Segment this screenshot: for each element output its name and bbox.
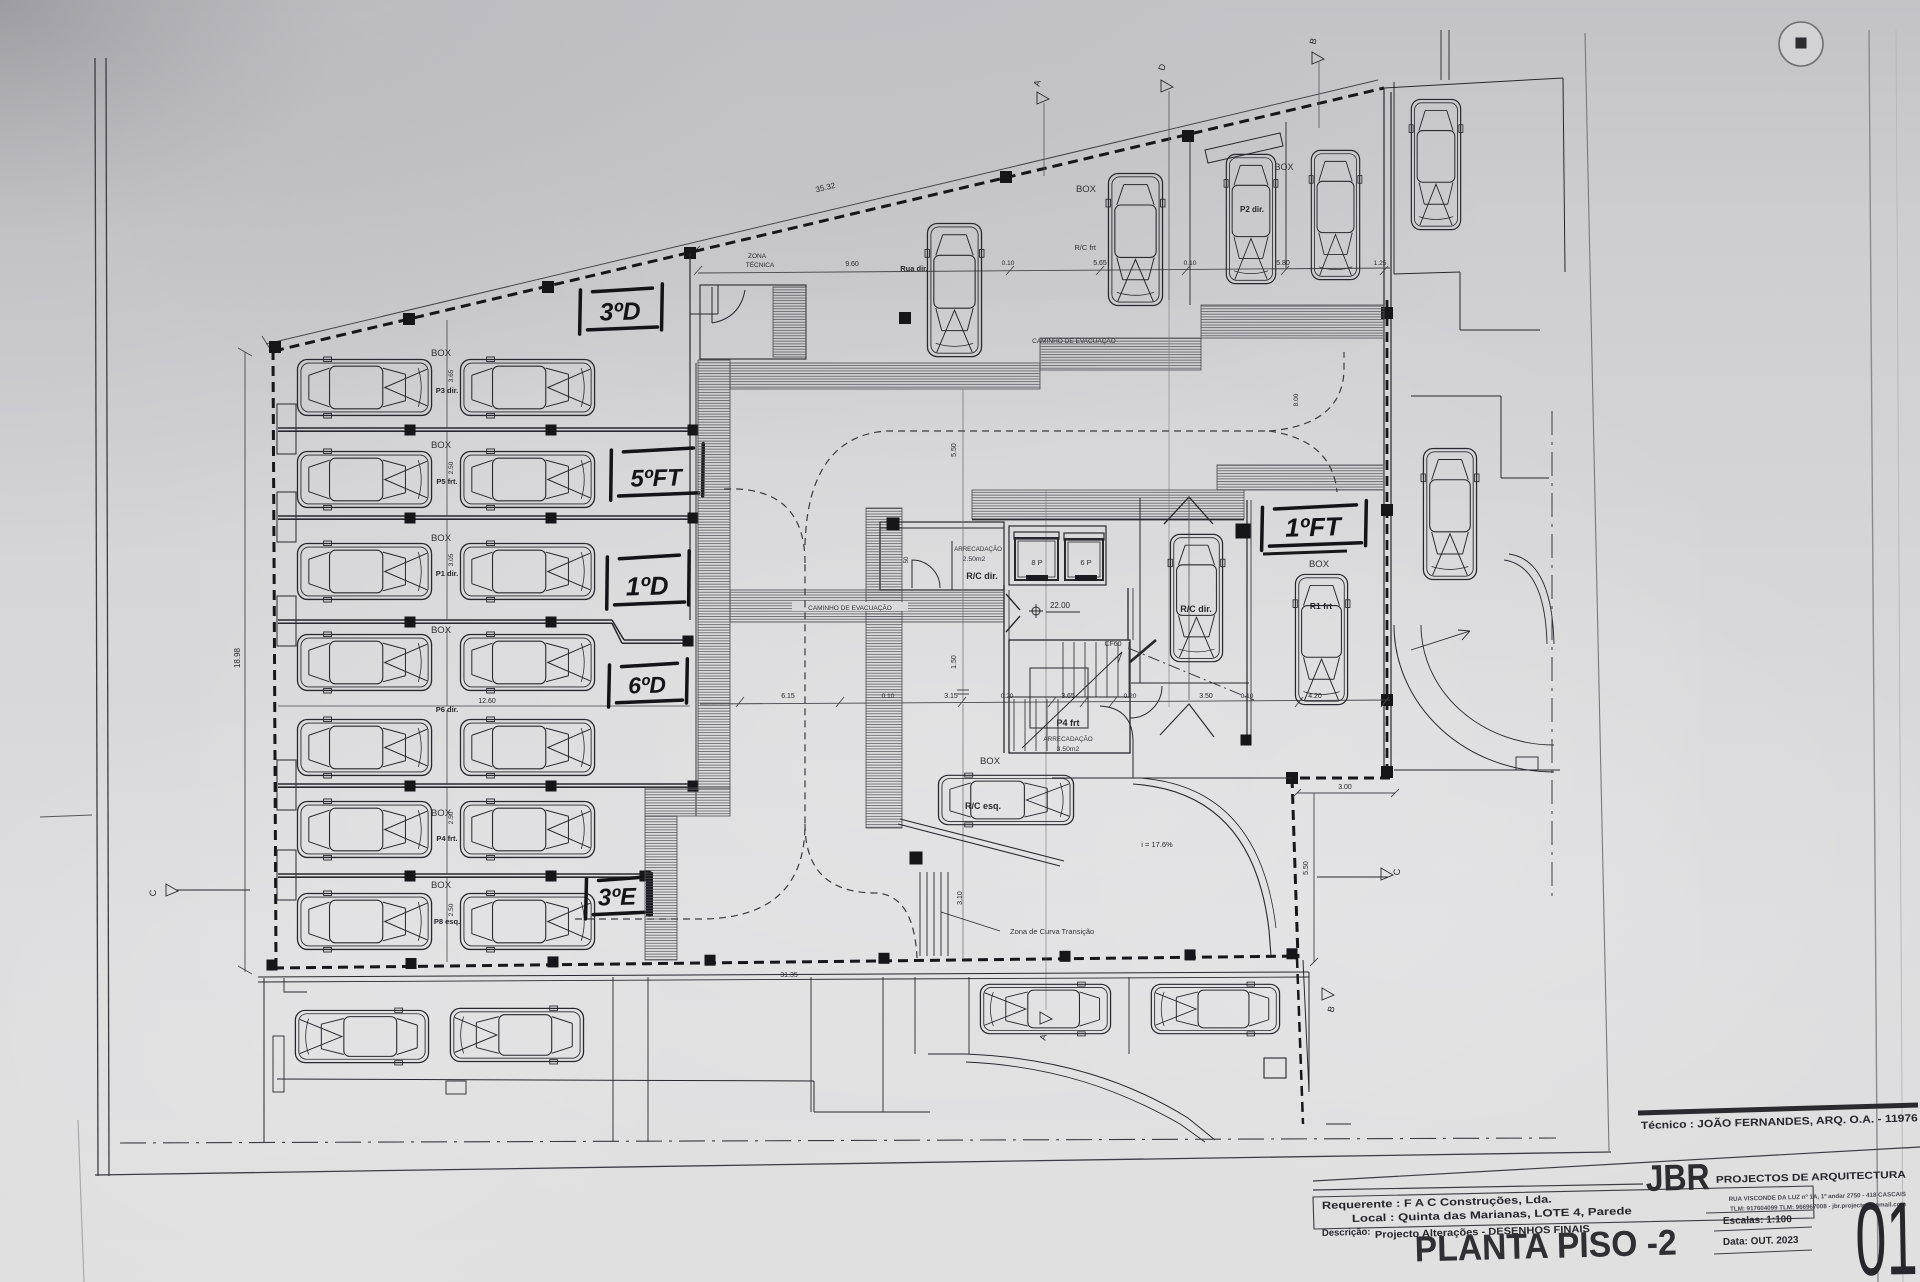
svg-text:R/C dir.: R/C dir. [966,571,998,581]
svg-text:5.65: 5.65 [1093,260,1107,267]
svg-text:31.35: 31.35 [780,972,798,979]
svg-text:ARRECADAÇÃO: ARRECADAÇÃO [954,546,1002,553]
svg-text:3.65: 3.65 [1061,693,1075,700]
svg-text:P6 dir.: P6 dir. [436,705,459,714]
svg-text:CAMINHO DE EVACUAÇÃO: CAMINHO DE EVACUAÇÃO [1032,336,1116,345]
svg-text:01: 01 [1854,1181,1918,1282]
svg-text:PLANTA PISO -2: PLANTA PISO -2 [1414,1222,1677,1270]
svg-text:C: C [1392,868,1402,875]
svg-text:BOX: BOX [431,625,452,636]
svg-text:CAMINHO DE EVACUAÇÃO: CAMINHO DE EVACUAÇÃO [808,603,892,612]
svg-text:8 P: 8 P [1031,558,1042,567]
svg-text:18.98: 18.98 [233,647,242,668]
svg-text:ARRECADAÇÃO: ARRECADAÇÃO [1043,734,1092,743]
svg-text:22.00: 22.00 [1050,601,1071,610]
svg-text:3.50: 3.50 [1199,693,1213,700]
svg-text:ZONA: ZONA [748,253,767,260]
svg-text:1.50: 1.50 [951,655,958,669]
svg-text:TÉCNICA: TÉCNICA [746,260,775,269]
svg-text:Rua dir.: Rua dir. [900,264,928,273]
svg-text:12.60: 12.60 [478,698,496,705]
svg-text:0.20: 0.20 [1124,693,1137,700]
svg-text:P1 dir.: P1 dir. [436,569,459,578]
svg-text:3.65: 3.65 [448,369,455,382]
svg-text:5.50: 5.50 [1303,861,1310,875]
svg-text:6.15: 6.15 [781,693,795,700]
svg-text:C: C [148,889,158,896]
svg-text:P2 dir.: P2 dir. [1240,205,1264,214]
svg-text:BOX: BOX [980,756,1001,767]
svg-text:5ºFT: 5ºFT [630,464,684,492]
svg-text:BOX: BOX [431,348,452,359]
svg-text:50: 50 [904,556,910,563]
svg-text:5.80: 5.80 [1276,260,1290,267]
svg-text:6ºD: 6ºD [628,672,666,699]
svg-text:i = 17.6%: i = 17.6% [1141,840,1173,849]
svg-text:0.10: 0.10 [882,693,895,700]
svg-text:P5 frt.: P5 frt. [436,477,457,486]
svg-text:R/C esq.: R/C esq. [965,801,1001,811]
svg-text:JBR: JBR [1645,1156,1710,1199]
svg-text:BOX: BOX [431,880,452,891]
svg-text:3.00: 3.00 [1338,784,1352,791]
svg-text:BOX: BOX [1309,559,1330,570]
svg-text:2.50: 2.50 [448,461,455,474]
svg-text:0.20: 0.20 [1001,693,1014,700]
svg-text:P4 frt.: P4 frt. [436,834,457,843]
svg-text:Descrição:: Descrição: [1322,1227,1371,1239]
svg-text:P3 dir.: P3 dir. [436,386,459,395]
svg-text:BOX: BOX [1076,184,1097,195]
svg-text:R1 frt: R1 frt [1310,601,1332,611]
svg-text:0.10: 0.10 [1002,260,1015,267]
svg-text:6 P: 6 P [1080,558,1091,567]
svg-text:3.05: 3.05 [448,553,455,566]
svg-text:3.50m2: 3.50m2 [1057,746,1080,753]
svg-text:BOX: BOX [431,533,452,544]
svg-text:1ºFT: 1ºFT [1285,511,1344,543]
svg-text:P4 frt: P4 frt [1056,718,1079,728]
svg-text:2.50: 2.50 [448,903,455,916]
svg-text:2.50m2: 2.50m2 [963,556,986,563]
svg-text:5.50: 5.50 [951,443,958,457]
svg-text:8.00: 8.00 [1293,393,1300,406]
svg-text:BOX: BOX [431,440,452,451]
svg-text:1ºD: 1ºD [625,570,669,601]
svg-text:3.15: 3.15 [944,693,958,700]
svg-text:R/C dir.: R/C dir. [1180,604,1212,614]
svg-text:3ºD: 3ºD [599,297,641,326]
svg-text:2.50: 2.50 [448,811,455,824]
svg-text:BOX: BOX [1274,162,1293,172]
svg-text:3ºE: 3ºE [598,883,638,911]
svg-text:P8 esq.: P8 esq. [434,917,460,926]
svg-text:1.25: 1.25 [1374,260,1387,267]
svg-text:Escalas: 1:100: Escalas: 1:100 [1723,1214,1793,1227]
svg-text:Zona de Curva Transição: Zona de Curva Transição [1010,927,1094,936]
svg-text:Data: OUT. 2023: Data: OUT. 2023 [1723,1235,1799,1248]
svg-text:R/C frt: R/C frt [1074,243,1097,252]
svg-text:9.60: 9.60 [845,261,859,268]
